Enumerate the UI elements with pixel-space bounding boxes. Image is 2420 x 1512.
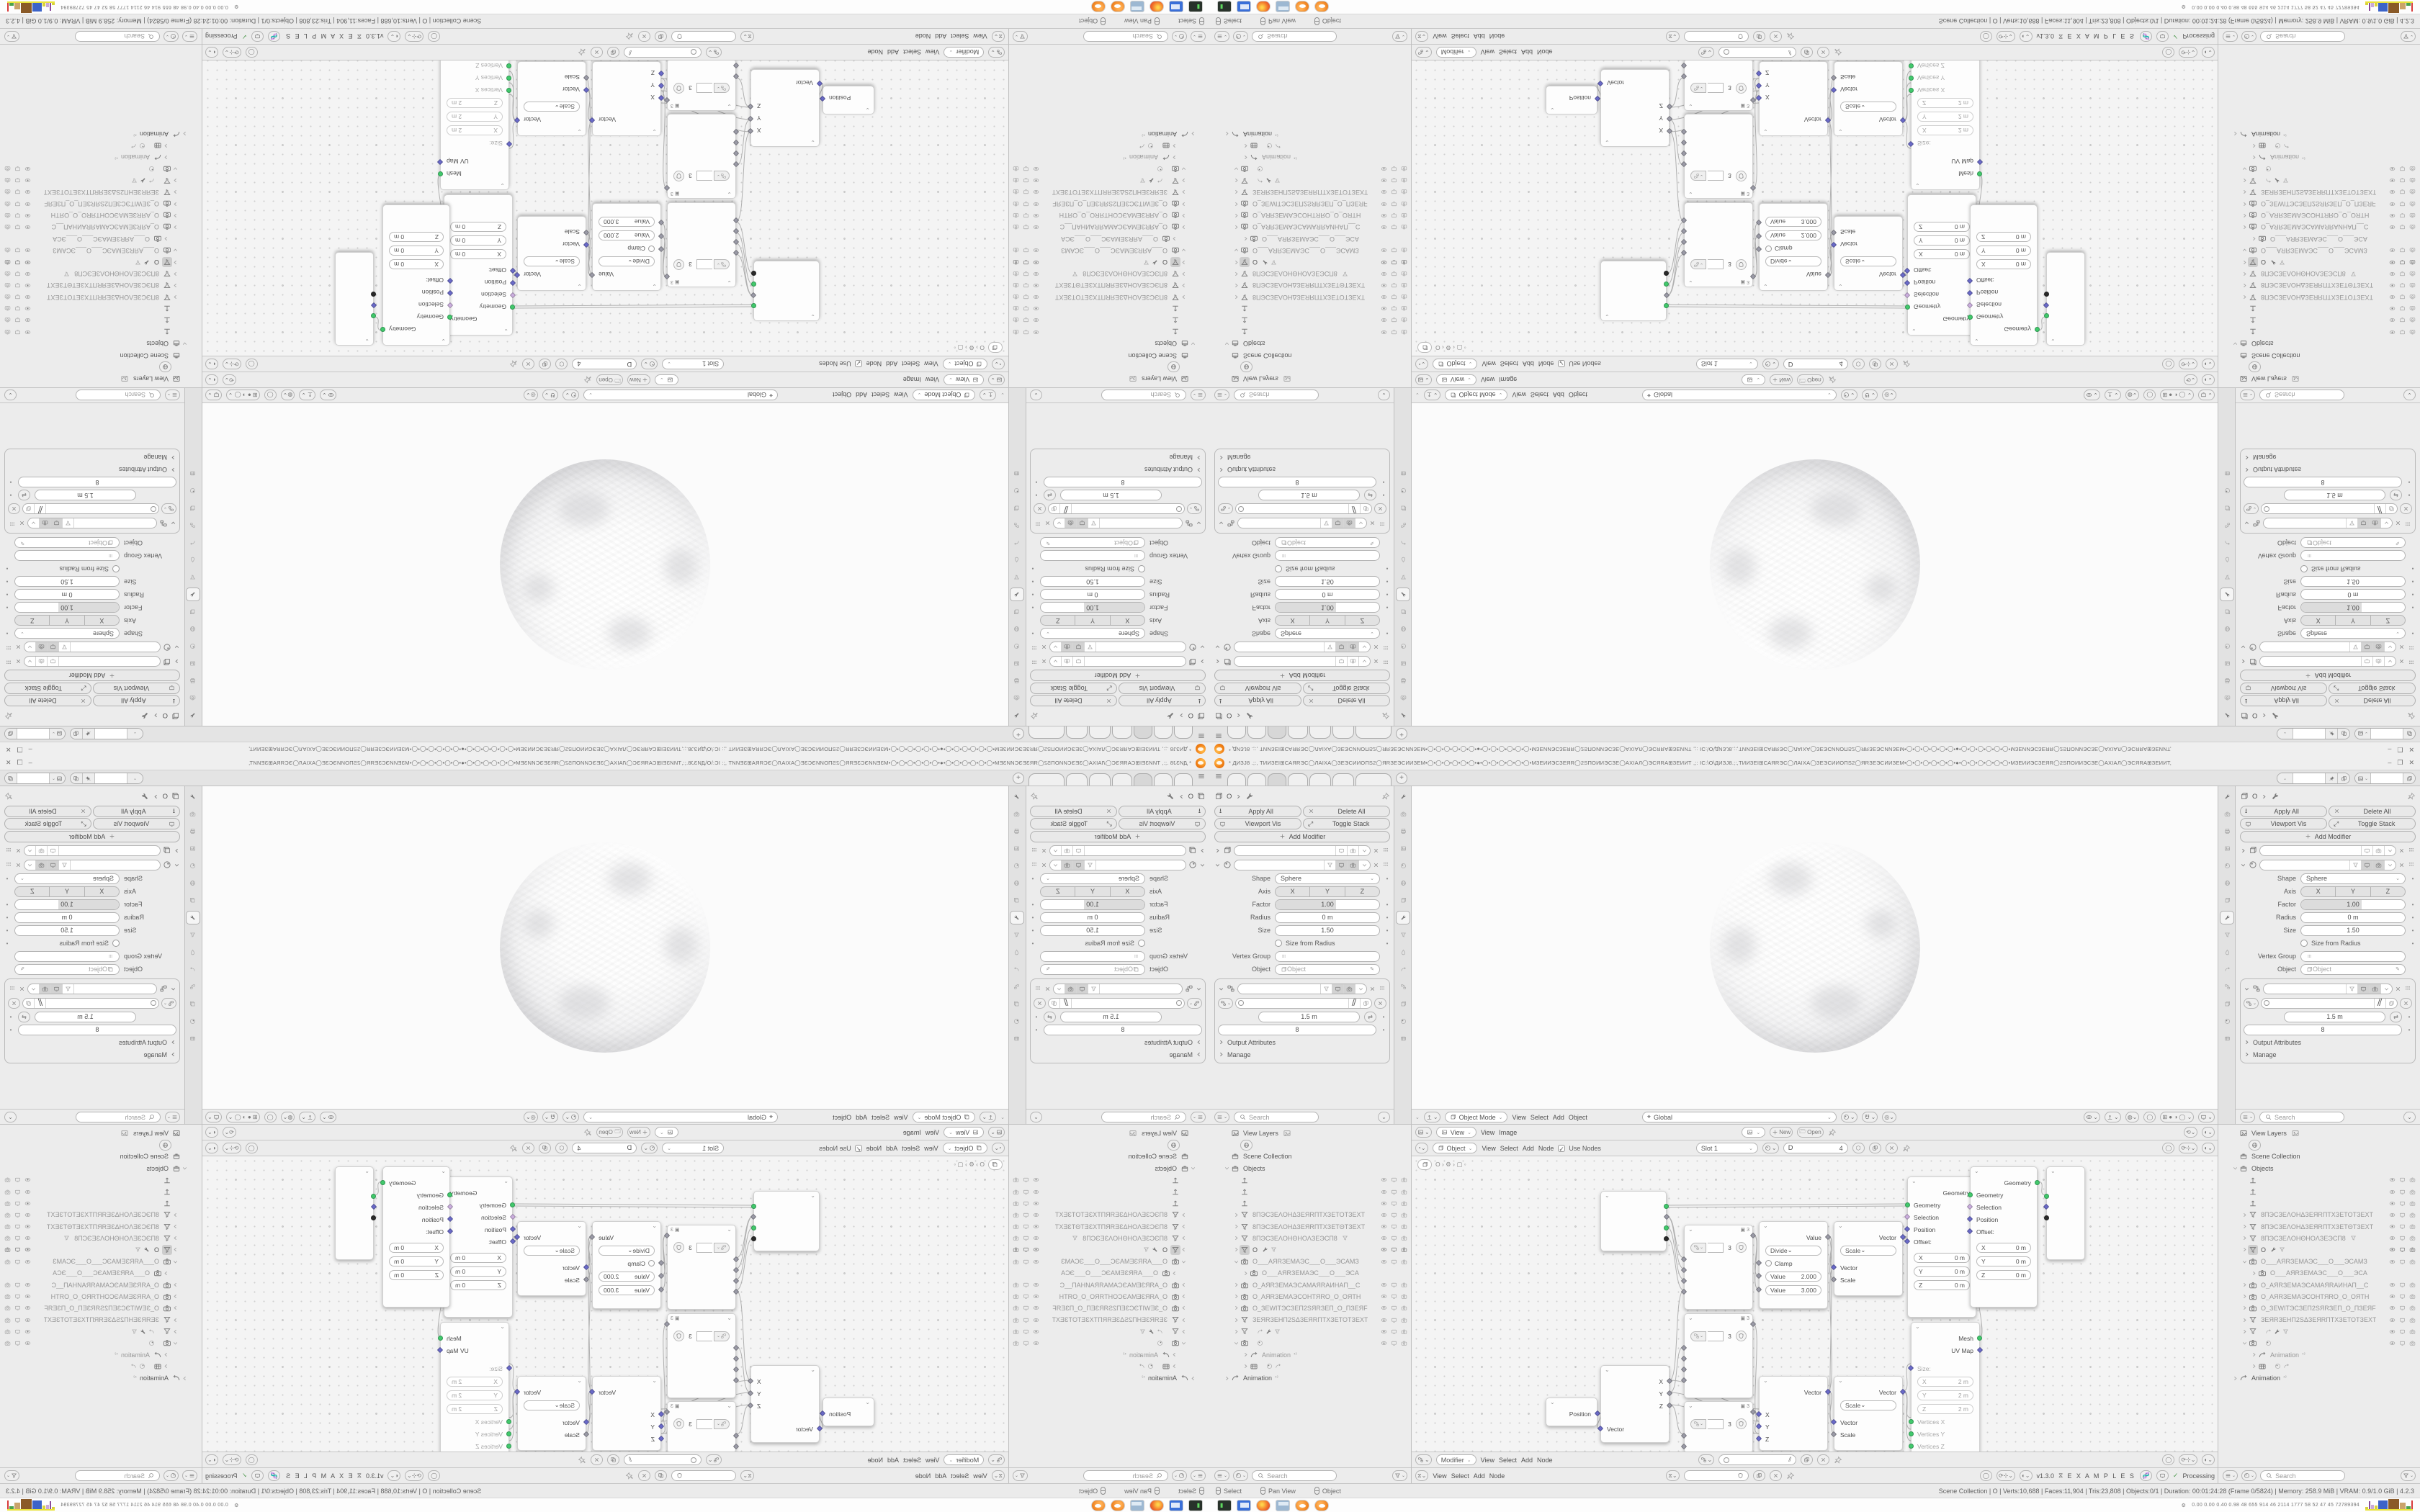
graph-node[interactable]: ⌄XYZVector (750, 69, 820, 147)
menu-view[interactable]: View (1481, 1457, 1494, 1464)
graph-node[interactable]: ⌄MeshUV MapSize:X2 mY2 mZ2 mVertices XVe… (440, 60, 509, 190)
outliner-row[interactable]: Objects (2218, 1163, 2420, 1174)
workspace-tab-4[interactable] (1112, 773, 1132, 786)
node-value-field[interactable]: X2 m (447, 126, 503, 136)
outliner-row[interactable] (0, 303, 202, 315)
menu-add[interactable]: Add (886, 1145, 897, 1152)
visibility-toggles[interactable] (4, 271, 31, 277)
node-value-field[interactable]: Z0 m (1914, 222, 1970, 233)
toggle-stack-button[interactable]: ⤢Toggle Stack (4, 683, 91, 694)
properties-tab-ball[interactable] (2220, 860, 2233, 872)
graph-node[interactable]: ⌄XYZVector (1600, 69, 1670, 147)
node-value-field[interactable]: Z2 m (1917, 1404, 1973, 1414)
factor-slider[interactable]: 1.00 (1040, 603, 1145, 613)
outliner-row[interactable] (1210, 1326, 1412, 1337)
drag-grip-icon[interactable] (1381, 643, 1390, 652)
node-modifier-header[interactable] (1218, 981, 1386, 996)
outliner-row[interactable] (1008, 303, 1210, 315)
pin-icon[interactable] (583, 376, 592, 384)
modifier-slot[interactable] (2240, 654, 2416, 669)
factor-slider[interactable]: 1.00 (1275, 899, 1380, 910)
modifier-slot[interactable] (2240, 858, 2416, 872)
node-socket[interactable] (371, 302, 377, 308)
node-socket[interactable] (1681, 63, 1687, 68)
snap-button[interactable]: ◯ (2162, 1143, 2174, 1153)
properties-tab-cube[interactable] (2220, 502, 2233, 514)
node-socket[interactable] (751, 282, 756, 287)
visibility-toggles[interactable] (1013, 1246, 1039, 1253)
properties-tab-nodes[interactable] (187, 981, 200, 993)
add-modifier-button[interactable]: Add Modifier (1214, 831, 1390, 842)
node-value-field[interactable]: Y0 m (389, 1256, 444, 1266)
outliner-row[interactable]: ЗEЯRЗEHП2SΔЗEЯRПTXЗETOTЗEXT (0, 1314, 202, 1326)
graph-node[interactable]: ⌄▣ 3⌄3 (1684, 1225, 1753, 1310)
mode-dropdown[interactable]: Object Mode⌄ (913, 1112, 976, 1122)
vertex-group-field[interactable] (14, 551, 120, 562)
properties-tab-cube[interactable] (1010, 502, 1023, 514)
factor-slider[interactable]: 1.00 (2300, 899, 2406, 910)
node-socket[interactable] (1905, 305, 1910, 310)
properties-tab-seq[interactable] (2220, 1032, 2233, 1045)
menu-add[interactable]: Add (1521, 1457, 1533, 1464)
transform-orientation-dropdown[interactable]: ⌖Global⌄ (583, 1112, 778, 1122)
node-tree-name-field[interactable] (1684, 31, 1749, 42)
visibility-toggles[interactable] (1013, 1200, 1039, 1207)
node-value-field[interactable]: Value2.000 (599, 231, 655, 241)
drag-grip-icon[interactable] (4, 846, 13, 855)
toggle-stack-button[interactable]: ⤢Toggle Stack (1030, 818, 1117, 829)
close-icon[interactable] (15, 847, 22, 854)
graph-node[interactable]: ⌄▣ 3⌄3 (667, 1313, 736, 1398)
node-socket[interactable] (658, 220, 664, 225)
apply-all-button[interactable]: ⭳Apply All (93, 696, 180, 707)
outliner-row[interactable]: Animation⁴² (1008, 1349, 1210, 1361)
delete-all-button[interactable]: Delete All (1030, 696, 1117, 707)
properties-tab-drop[interactable] (1397, 946, 1410, 958)
outliner-row[interactable] (1008, 1197, 1210, 1209)
snap-button[interactable]: ◯ (2162, 359, 2174, 369)
workspace-tab-6[interactable] (1066, 726, 1088, 739)
visibility-toggles[interactable] (1013, 1328, 1039, 1335)
properties-tab-nodes[interactable] (1397, 519, 1410, 531)
menu-object[interactable]: Object (833, 1114, 851, 1121)
node-socket[interactable] (733, 1278, 739, 1284)
gizmos-button[interactable]: ⌄ (299, 1112, 315, 1122)
properties-tab-img[interactable] (2220, 657, 2233, 670)
node-input-field[interactable]: 1.5 m (35, 490, 136, 501)
menu-add[interactable]: Add (1474, 33, 1485, 40)
close-icon[interactable] (2398, 847, 2405, 854)
visibility-toggles[interactable] (4, 1246, 31, 1253)
outliner-row[interactable] (2218, 1139, 2420, 1151)
node-input-field[interactable]: 1.5 m (2284, 490, 2385, 501)
modifier-slot[interactable] (1214, 654, 1390, 669)
properties-tab-funnel[interactable] (1397, 929, 1410, 941)
visibility-toggles[interactable] (2389, 1259, 2416, 1265)
drag-grip-icon[interactable] (4, 860, 13, 869)
copy-button[interactable] (1869, 1143, 1881, 1153)
viewport-vis-button[interactable]: Viewport Vis (1214, 683, 1301, 694)
node-socket[interactable] (1904, 1238, 1910, 1244)
browser-app-icon[interactable] (1149, 1, 1164, 13)
manage-collapse[interactable]: Manage (8, 451, 176, 464)
node-socket[interactable] (1756, 1287, 1762, 1292)
outliner-row[interactable]: Scene Collection (0, 349, 202, 361)
properties-tab-nodes[interactable] (2220, 519, 2233, 531)
workspace-tab-7[interactable] (1355, 773, 1391, 786)
visibility-toggles[interactable] (1013, 1340, 1039, 1346)
gizmos-button[interactable]: ⌄ (299, 390, 315, 400)
graph-node[interactable]: ⌄GeometryGeometrySelectionPositionOffset… (1907, 1176, 1976, 1318)
viewport-canvas[interactable] (202, 786, 1008, 1109)
node-socket[interactable] (733, 217, 739, 223)
node-socket[interactable] (1756, 95, 1762, 101)
render-view-button[interactable]: ⌄ (205, 390, 222, 400)
graph-node[interactable]: ⌄▣ 3⌄3 (1684, 202, 1753, 287)
node-value-field[interactable]: X2 m (1917, 126, 1973, 136)
visibility-toggles[interactable] (2389, 212, 2416, 219)
outliner-filter-button[interactable]: ⌄ (1013, 31, 1028, 42)
outliner-row[interactable]: Objects (1210, 338, 1412, 349)
node-socket[interactable] (506, 63, 511, 68)
properties-tab-nodes[interactable] (1010, 519, 1023, 531)
close-icon[interactable] (1373, 659, 1379, 665)
node-socket[interactable] (437, 159, 443, 165)
overlay-button[interactable]: ◐⌄ (2020, 1470, 2033, 1481)
transform-orientation-dropdown[interactable]: ⌖Global⌄ (583, 390, 778, 400)
menu-view[interactable]: View (1433, 1472, 1446, 1480)
node-modifier-header[interactable] (1218, 516, 1386, 531)
outliner-row[interactable]: O_AЯRЗEMAЭCOHTЯRO_O_OЯTH (0, 1291, 202, 1302)
outliner-row[interactable]: O (1008, 256, 1210, 268)
node-socket[interactable] (748, 104, 753, 109)
texture-browse-button[interactable]: ⌄ (1762, 1143, 1779, 1153)
scene-selector[interactable]: ⌄ (70, 773, 143, 784)
console-button[interactable] (251, 1470, 264, 1481)
copy-button[interactable] (1753, 31, 1765, 42)
menu-image[interactable]: Image (903, 1129, 921, 1136)
visibility-toggles[interactable] (1381, 271, 1407, 277)
properties-tab-funnel[interactable] (2220, 571, 2233, 583)
outliner-row[interactable]: O___AЯRЗEMAЭC___O___ЭCA (1210, 233, 1412, 245)
node-input-field[interactable]: 1.5 m (2284, 1012, 2385, 1022)
menu-select[interactable]: Select (1531, 392, 1549, 399)
menu-add[interactable]: Add (856, 1114, 867, 1121)
node-dropdown[interactable]: Scale⌄ (1840, 257, 1896, 267)
visibility-toggles[interactable] (1381, 212, 1407, 219)
output-attributes-collapse[interactable]: Output Attributes (1218, 1036, 1386, 1048)
graph-node[interactable]: ⌄GeometryGeometrySelectionPositionOffset… (382, 1166, 450, 1308)
integer-input-row[interactable]: ⌄3 (673, 83, 730, 94)
visibility-toggles[interactable] (2389, 1176, 2416, 1183)
viewport-vis-button[interactable]: Viewport Vis (1214, 818, 1301, 829)
node-value-field[interactable]: Value2.000 (1765, 231, 1821, 241)
apply-all-button[interactable]: ⭳Apply All (1119, 696, 1206, 707)
shading-mode-segment[interactable]: ⊞ ● ◑ ◯ ⌄ (226, 390, 260, 400)
editor-type-button[interactable]: ⌄ (1415, 374, 1432, 385)
integer-input-row[interactable]: ⌄3 (1690, 259, 1747, 270)
radius-field[interactable]: 0 m (1275, 590, 1380, 600)
outliner-row[interactable] (1210, 303, 1412, 315)
editor-type-button[interactable]: ⌄ (2240, 390, 2255, 400)
outliner-row[interactable] (0, 1139, 202, 1151)
shape-dropdown[interactable]: Sphere⌄ (14, 873, 120, 884)
view-object-types-button[interactable]: ⌄ (320, 390, 336, 400)
render-view-button[interactable]: ⌄ (205, 1112, 222, 1122)
node-socket[interactable] (1968, 1192, 1973, 1197)
display-mode-button[interactable]: ⌄ (1214, 1470, 1229, 1481)
view-layer-selector[interactable]: ⌄ (4, 773, 66, 784)
outliner-search-input[interactable]: Search (1083, 31, 1168, 42)
unlink-button[interactable] (1817, 47, 1829, 58)
menu-image[interactable]: Image (1499, 1129, 1517, 1136)
node-tree-name-field[interactable]: ⫽ (1718, 1454, 1796, 1465)
outliner-row[interactable] (1008, 163, 1210, 174)
display-mode-button[interactable]: ⌄ (1191, 31, 1206, 42)
node-socket[interactable] (1681, 1356, 1687, 1362)
unlink-button[interactable] (1770, 31, 1782, 42)
files-app-icon[interactable] (1237, 1500, 1251, 1511)
menu-add[interactable]: Add (1553, 392, 1564, 399)
outliner-row[interactable] (1008, 1186, 1210, 1197)
visibility-toggles[interactable] (4, 1223, 31, 1230)
filter-collection-button[interactable]: ⌄ (163, 31, 179, 42)
node-tree-selector[interactable]: ⌄ ⫽ (2244, 502, 2412, 516)
editor-type-button[interactable]: ⌄ (988, 1127, 1005, 1138)
integer-input-row[interactable]: ⌄3 (673, 1331, 730, 1341)
shape-dropdown[interactable]: Sphere⌄ (2300, 873, 2406, 884)
scene-selector[interactable]: ⌄ (2277, 773, 2350, 784)
outliner-row[interactable]: O___AЯRЗEMAЭC___O___ЭCA (0, 1267, 202, 1279)
viewport-3d[interactable]: ⌄ ⌄ Object Mode⌄ View Select Add Object … (202, 387, 1008, 726)
node-socket[interactable] (1909, 1419, 1914, 1424)
visibility-toggles[interactable] (1381, 1305, 1407, 1311)
node-socket[interactable] (510, 1202, 515, 1207)
view-object-types-button[interactable]: ⌄ (2084, 390, 2100, 400)
integer-input-row[interactable]: ⌄3 (673, 171, 730, 181)
modifier-slot[interactable] (1030, 843, 1206, 858)
node-socket[interactable] (1681, 1256, 1687, 1262)
snap-target-button[interactable]: ⌄ (1841, 1112, 1857, 1122)
node-socket[interactable] (820, 1410, 825, 1416)
visibility-toggles[interactable] (1013, 1259, 1039, 1265)
outliner-row[interactable]: O___AЯRЗEMAЭC___O___ЭCAMЗ (0, 1256, 202, 1267)
node-socket[interactable] (1756, 1423, 1762, 1429)
visibility-toggles[interactable] (1013, 166, 1039, 172)
modifier-slot[interactable] (4, 654, 180, 669)
visibility-toggles[interactable] (2389, 1282, 2416, 1288)
outliner-row[interactable]: 8ПЭCЗEΛOHΘHOΛЗEЭCП8 (1008, 1233, 1210, 1244)
integer-input-row[interactable]: ⌄3 (673, 259, 730, 270)
visibility-toggles[interactable] (2389, 282, 2416, 289)
overlay-button[interactable]: ◐⌄ (205, 1454, 218, 1465)
node-socket[interactable] (1756, 1260, 1762, 1266)
node-canvas[interactable]: O › ⚙ › ▢ ◦ ⌄⌄▣ 3⌄3⌄▣ 3⌄3⌄▣ 3⌄3⌄ValueDiv… (202, 60, 1008, 356)
graph-node[interactable]: ⌄ (2046, 252, 2085, 346)
node-socket[interactable] (437, 1347, 443, 1353)
axis-segmented[interactable]: XYZ (2300, 886, 2406, 897)
menu-select[interactable]: Select (903, 1457, 921, 1464)
menu-icon[interactable] (1214, 729, 1223, 742)
menu-object[interactable]: Object (833, 392, 851, 399)
input-attribute-toggle[interactable]: ⇄ (18, 490, 30, 501)
properties-tab-globe[interactable] (2220, 623, 2233, 635)
node-socket[interactable] (1667, 1403, 1672, 1408)
outliner-row[interactable]: 8ПЭCЗEΛOHΔЗEЯRПTXЗETOTЗEXT (1210, 292, 1412, 303)
visibility-toggles[interactable] (4, 177, 31, 184)
menu-view[interactable]: View (1482, 361, 1495, 368)
terminal-app-icon[interactable]: ▮ (1217, 1, 1232, 13)
node-socket[interactable] (583, 1419, 589, 1425)
drag-grip-icon[interactable] (2407, 643, 2416, 652)
close-button[interactable]: ✕ (6, 745, 12, 753)
node-socket[interactable] (733, 161, 739, 167)
use-nodes-checkbox[interactable]: ✓Use Nodes (1558, 361, 1601, 368)
add-workspace-button[interactable]: + (1013, 728, 1024, 739)
node-socket[interactable] (658, 1423, 664, 1429)
factor-slider[interactable]: 1.00 (2300, 603, 2406, 613)
outliner-row[interactable]: 8ПЭCЗEΛOHΘHOΛЗEЭCП8 (1210, 1233, 1412, 1244)
visibility-toggles[interactable] (4, 1305, 31, 1311)
outliner-row[interactable]: Animation⁴² (1210, 128, 1412, 140)
pin-icon[interactable] (583, 1128, 592, 1137)
visibility-toggles[interactable] (1381, 177, 1407, 184)
node-socket[interactable] (1681, 1267, 1687, 1273)
search-input[interactable]: Search (76, 1112, 161, 1122)
menu-add[interactable]: Add (856, 392, 867, 399)
node-checkbox[interactable]: Clamp (627, 246, 655, 253)
snap-magnet-button[interactable]: ⌄ (1862, 390, 1878, 400)
properties-tab-cam[interactable] (187, 692, 200, 704)
factor-slider[interactable]: 1.00 (14, 603, 120, 613)
open-image-button[interactable]: 🗁Open (1797, 374, 1824, 385)
outliner-row[interactable]: 8ПЭCЗEΛOHΔЗEЯRПTXЗETΘTЗEXT (1008, 1221, 1210, 1233)
outliner-row[interactable] (1210, 163, 1412, 174)
node-socket[interactable] (1904, 1214, 1910, 1220)
texture-name-field[interactable]: Ⅾ4 (1783, 359, 1848, 369)
outliner-row[interactable] (0, 326, 202, 338)
node-tree-name-field[interactable] (671, 1470, 736, 1481)
outliner-row[interactable] (2218, 315, 2420, 326)
filter-collection-button[interactable]: ⌄ (1172, 31, 1187, 42)
properties-tab-wrench[interactable] (187, 791, 200, 803)
graph-node[interactable]: ⌄VectorScale⌄VectorScale (1834, 1221, 1903, 1296)
outliner-row[interactable]: 8ПЭCЗEΛOHΘHOΛЗEЭCП8 (2218, 268, 2420, 279)
drag-grip-icon[interactable] (1030, 657, 1039, 666)
node-input-field[interactable]: 8 (2244, 477, 2402, 488)
shape-dropdown[interactable]: Sphere⌄ (1275, 873, 1380, 884)
snap-button[interactable]: ◯ (246, 1454, 258, 1465)
texture-name-field[interactable]: Ⅾ4 (572, 359, 637, 369)
properties-tab-anim[interactable] (1010, 536, 1023, 549)
outliner-row[interactable]: O___AЯRЗEMAЭC___O___ЭCA (0, 233, 202, 245)
workspace-tab-1[interactable] (1174, 726, 1193, 739)
snap-node-button[interactable]: ⟳⊹⌄ (1996, 1470, 2015, 1481)
node-tree-browse-button[interactable]: ⌄ (1698, 1454, 1715, 1465)
add-modifier-button[interactable]: Add Modifier (4, 831, 180, 842)
visibility-toggles[interactable] (4, 1212, 31, 1218)
vertex-group-field[interactable] (1040, 551, 1145, 562)
close-icon[interactable] (2395, 521, 2401, 527)
close-icon[interactable] (2398, 659, 2405, 665)
xray-toggle[interactable]: ◯ (264, 1112, 277, 1122)
viewport-3d[interactable]: ⌄ ⌄ Object Mode⌄ View Select Add Object … (202, 786, 1008, 1125)
factor-slider[interactable]: 1.00 (1275, 603, 1380, 613)
open-image-button[interactable]: 🗁Open (1797, 1127, 1824, 1138)
menu-select[interactable]: Select (1499, 1457, 1517, 1464)
editor-type-button[interactable]: ⧖⌄ (1415, 31, 1428, 42)
properties-tab-globe[interactable] (1397, 877, 1410, 889)
node-dropdown[interactable]: Divide⌄ (599, 257, 655, 267)
menu-view[interactable]: View (973, 33, 987, 40)
menu-node[interactable]: Node (1489, 33, 1505, 40)
menu-icon[interactable] (1197, 770, 1206, 783)
snap-node-button[interactable]: ⟳⊹⌄ (2179, 1454, 2197, 1465)
sphere-object[interactable] (500, 842, 710, 1053)
visibility-toggles[interactable] (1013, 1305, 1039, 1311)
outliner-row[interactable] (2218, 1174, 2420, 1186)
node-checkbox[interactable]: Clamp (1765, 246, 1793, 253)
drag-grip-icon[interactable] (1034, 984, 1042, 993)
node-socket[interactable] (1825, 1389, 1831, 1395)
node-modifier-header[interactable] (2244, 516, 2412, 531)
outliner-row[interactable]: Scene Collection (0, 1151, 202, 1162)
node-input-field[interactable]: 8 (1218, 477, 1376, 488)
properties-tab-drop[interactable] (187, 554, 200, 566)
node-input-field[interactable]: 1.5 m (1258, 1012, 1360, 1022)
menu-view[interactable]: View (894, 392, 907, 399)
outliner-row[interactable] (1008, 1174, 1210, 1186)
visibility-toggles[interactable] (2389, 259, 2416, 266)
node-socket[interactable] (751, 1236, 756, 1241)
outliner-row[interactable] (1008, 315, 1210, 326)
node-modifier-header[interactable] (2244, 981, 2412, 996)
node-socket[interactable] (733, 63, 739, 68)
node-socket[interactable] (506, 1431, 511, 1436)
node-value-field[interactable]: Y0 m (1914, 1266, 1970, 1277)
overlays-button[interactable]: ◍⌄ (2125, 1112, 2140, 1122)
add-workspace-button[interactable]: + (1013, 773, 1024, 784)
properties-tab-drop[interactable] (1397, 554, 1410, 566)
browser-app-icon[interactable] (1256, 1, 1270, 13)
node-socket[interactable] (506, 1365, 512, 1371)
display-mode-button[interactable]: ⌄ (1191, 1470, 1206, 1481)
viewport-canvas[interactable] (1412, 786, 2218, 1109)
outliner-row[interactable]: Animation⁴² (2218, 1349, 2420, 1361)
calculator-app-icon[interactable] (1276, 1500, 1290, 1511)
blender-app-icon[interactable] (1111, 1, 1125, 13)
axis-segmented[interactable]: XYZ (1040, 616, 1145, 626)
node-tree-browse-button[interactable]: ⌄ (1698, 47, 1715, 58)
viewport-3d[interactable]: ⌄ ⌄ Object Mode⌄ View Select Add Object … (1412, 786, 2218, 1125)
outliner-row[interactable] (2218, 303, 2420, 315)
node-socket[interactable] (820, 96, 825, 102)
workspace-tab-3[interactable] (1268, 773, 1286, 786)
node-socket[interactable] (1681, 1345, 1687, 1351)
snap-node-button[interactable]: ⟳⊹⌄ (223, 47, 241, 58)
node-socket[interactable] (1681, 73, 1687, 79)
editor-type-button[interactable]: ⌄ (1214, 390, 1229, 400)
node-value-field[interactable]: Value3.000 (599, 217, 655, 228)
drag-grip-icon[interactable] (2407, 860, 2416, 869)
transform-orientation-dropdown[interactable]: ⌖Global⌄ (1642, 390, 1837, 400)
filter-collection-button[interactable]: ⌄ (1233, 1470, 1248, 1481)
editor-type-button[interactable]: ⌄ (988, 374, 1005, 385)
image-view-dropdown[interactable]: View⌄ (944, 1127, 984, 1138)
apply-all-button[interactable]: ⭳Apply All (1119, 806, 1206, 817)
add-workspace-button[interactable]: + (1396, 773, 1407, 784)
output-attributes-collapse[interactable]: Output Attributes (1218, 464, 1386, 476)
